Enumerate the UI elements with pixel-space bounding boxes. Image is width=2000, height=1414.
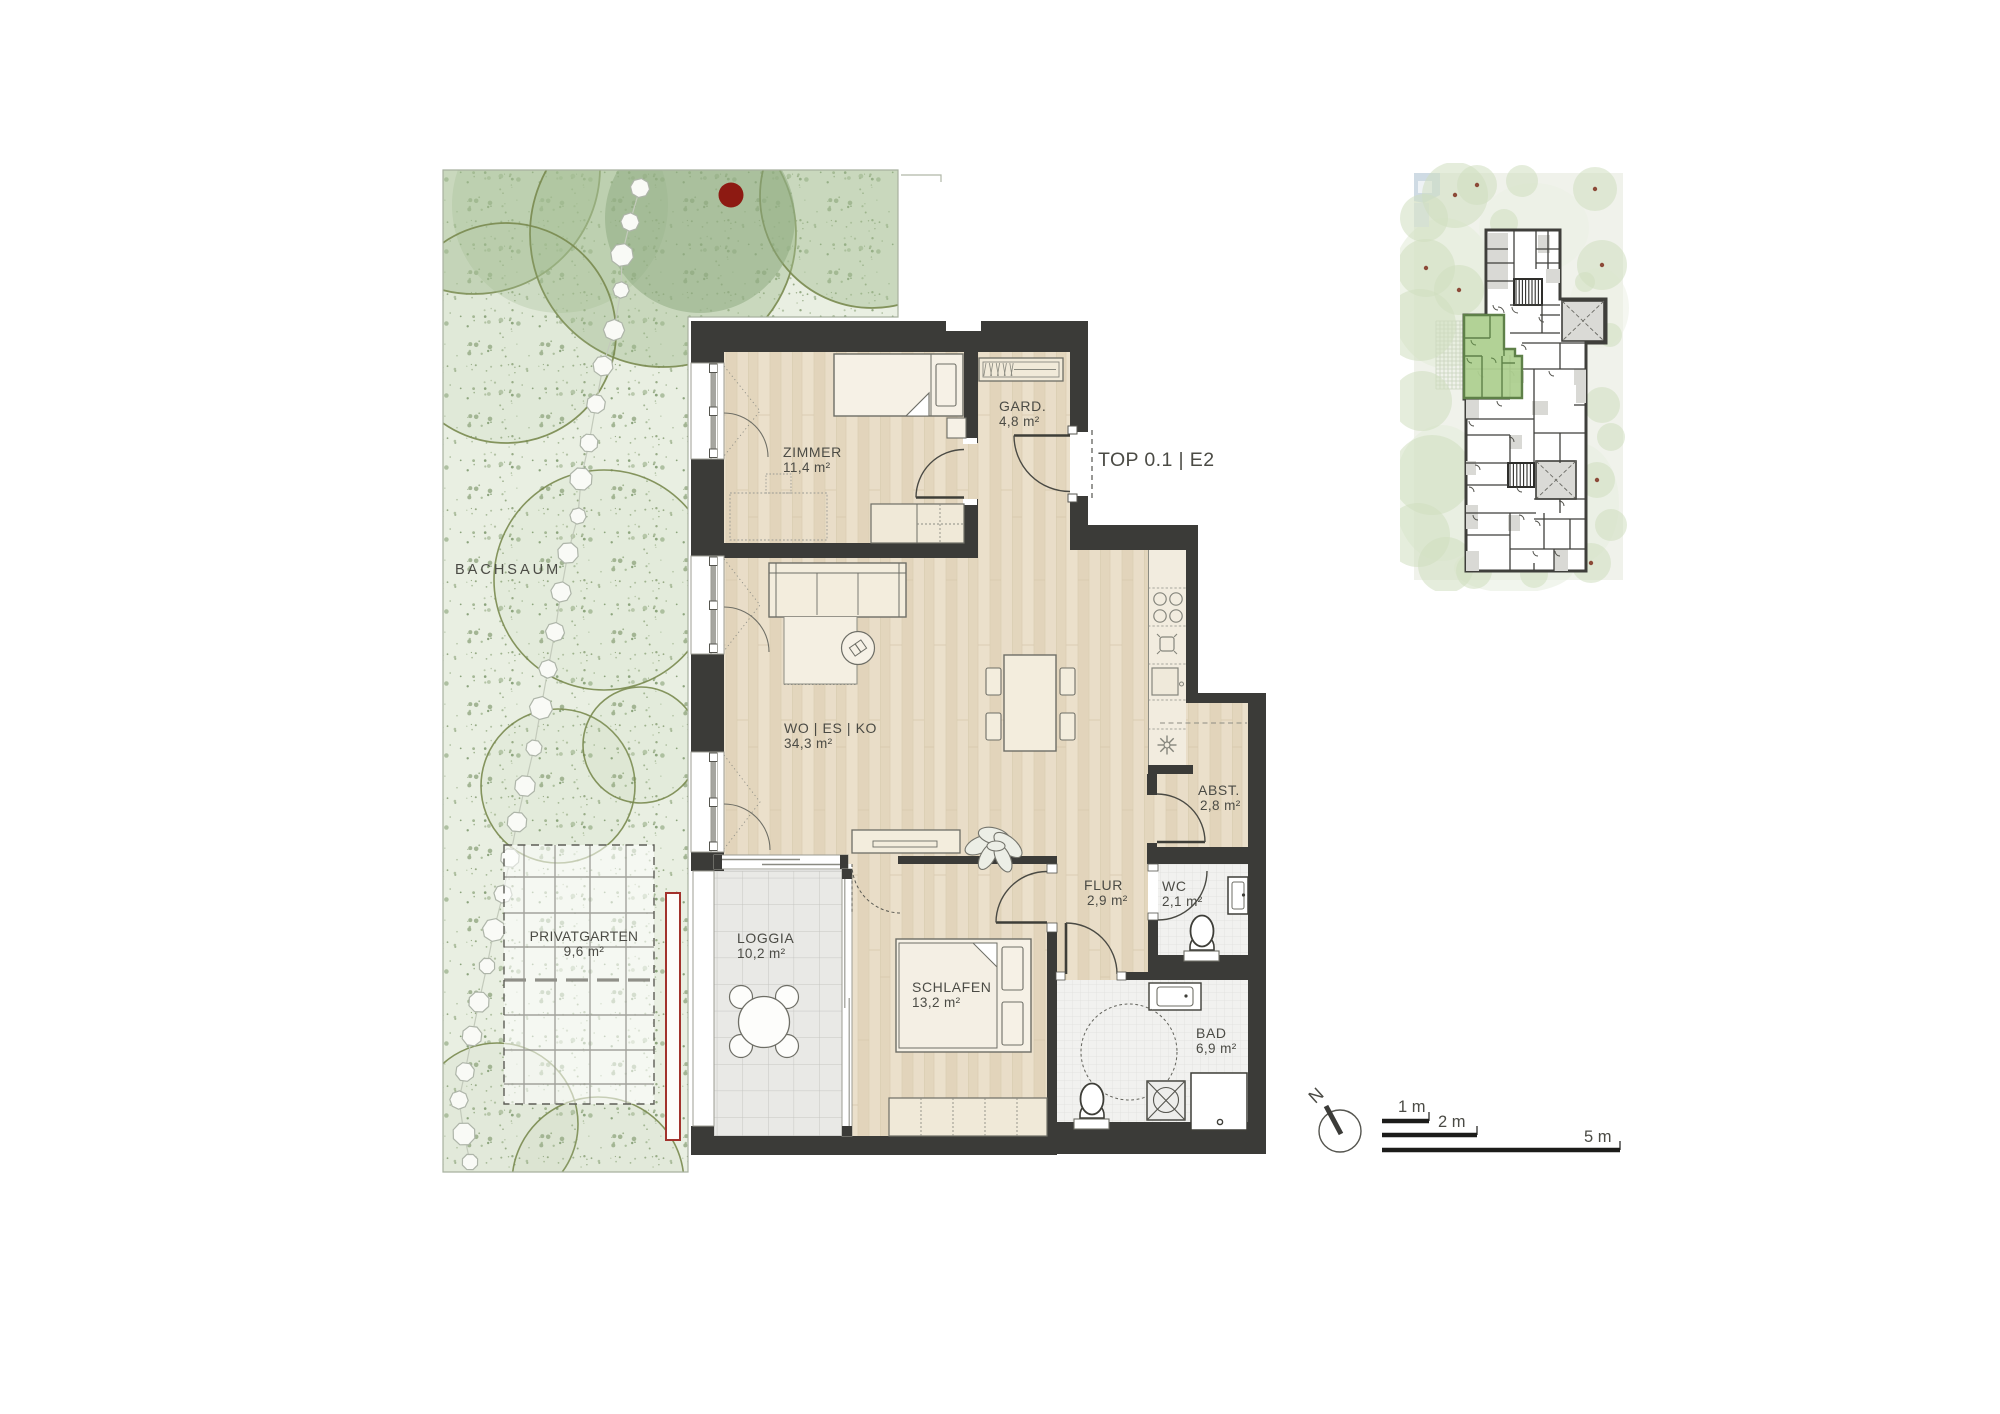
- svg-text:6,9 m²: 6,9 m²: [1196, 1041, 1237, 1056]
- svg-text:34,3 m²: 34,3 m²: [784, 736, 833, 751]
- svg-text:1 m: 1 m: [1398, 1098, 1426, 1116]
- svg-text:11,4 m²: 11,4 m²: [783, 460, 831, 475]
- svg-text:N: N: [1305, 1084, 1328, 1108]
- svg-text:BACHSAUM: BACHSAUM: [455, 562, 561, 578]
- svg-text:2 m: 2 m: [1438, 1113, 1466, 1131]
- svg-text:TOP 0.1 | E2: TOP 0.1 | E2: [1098, 449, 1214, 471]
- svg-text:4,8 m²: 4,8 m²: [999, 414, 1040, 429]
- svg-text:SCHLAFEN: SCHLAFEN: [912, 979, 991, 995]
- svg-text:2,8 m²: 2,8 m²: [1200, 798, 1241, 813]
- svg-text:10,2 m²: 10,2 m²: [737, 946, 786, 961]
- svg-text:13,2 m²: 13,2 m²: [912, 995, 961, 1010]
- svg-text:PRIVATGARTEN: PRIVATGARTEN: [530, 929, 639, 944]
- svg-text:GARD.: GARD.: [999, 398, 1046, 414]
- svg-text:2,1 m²: 2,1 m²: [1162, 894, 1203, 909]
- svg-text:ZIMMER: ZIMMER: [783, 444, 842, 460]
- svg-text:9,6 m²: 9,6 m²: [564, 944, 605, 959]
- svg-text:WO | ES | KO: WO | ES | KO: [784, 720, 877, 736]
- svg-text:ABST.: ABST.: [1198, 782, 1240, 798]
- svg-text:FLUR: FLUR: [1084, 877, 1123, 893]
- svg-text:5 m: 5 m: [1584, 1128, 1612, 1146]
- svg-text:LOGGIA: LOGGIA: [737, 930, 794, 946]
- svg-text:2,9 m²: 2,9 m²: [1087, 893, 1128, 908]
- svg-text:BAD: BAD: [1196, 1025, 1227, 1041]
- svg-text:WC: WC: [1162, 878, 1187, 894]
